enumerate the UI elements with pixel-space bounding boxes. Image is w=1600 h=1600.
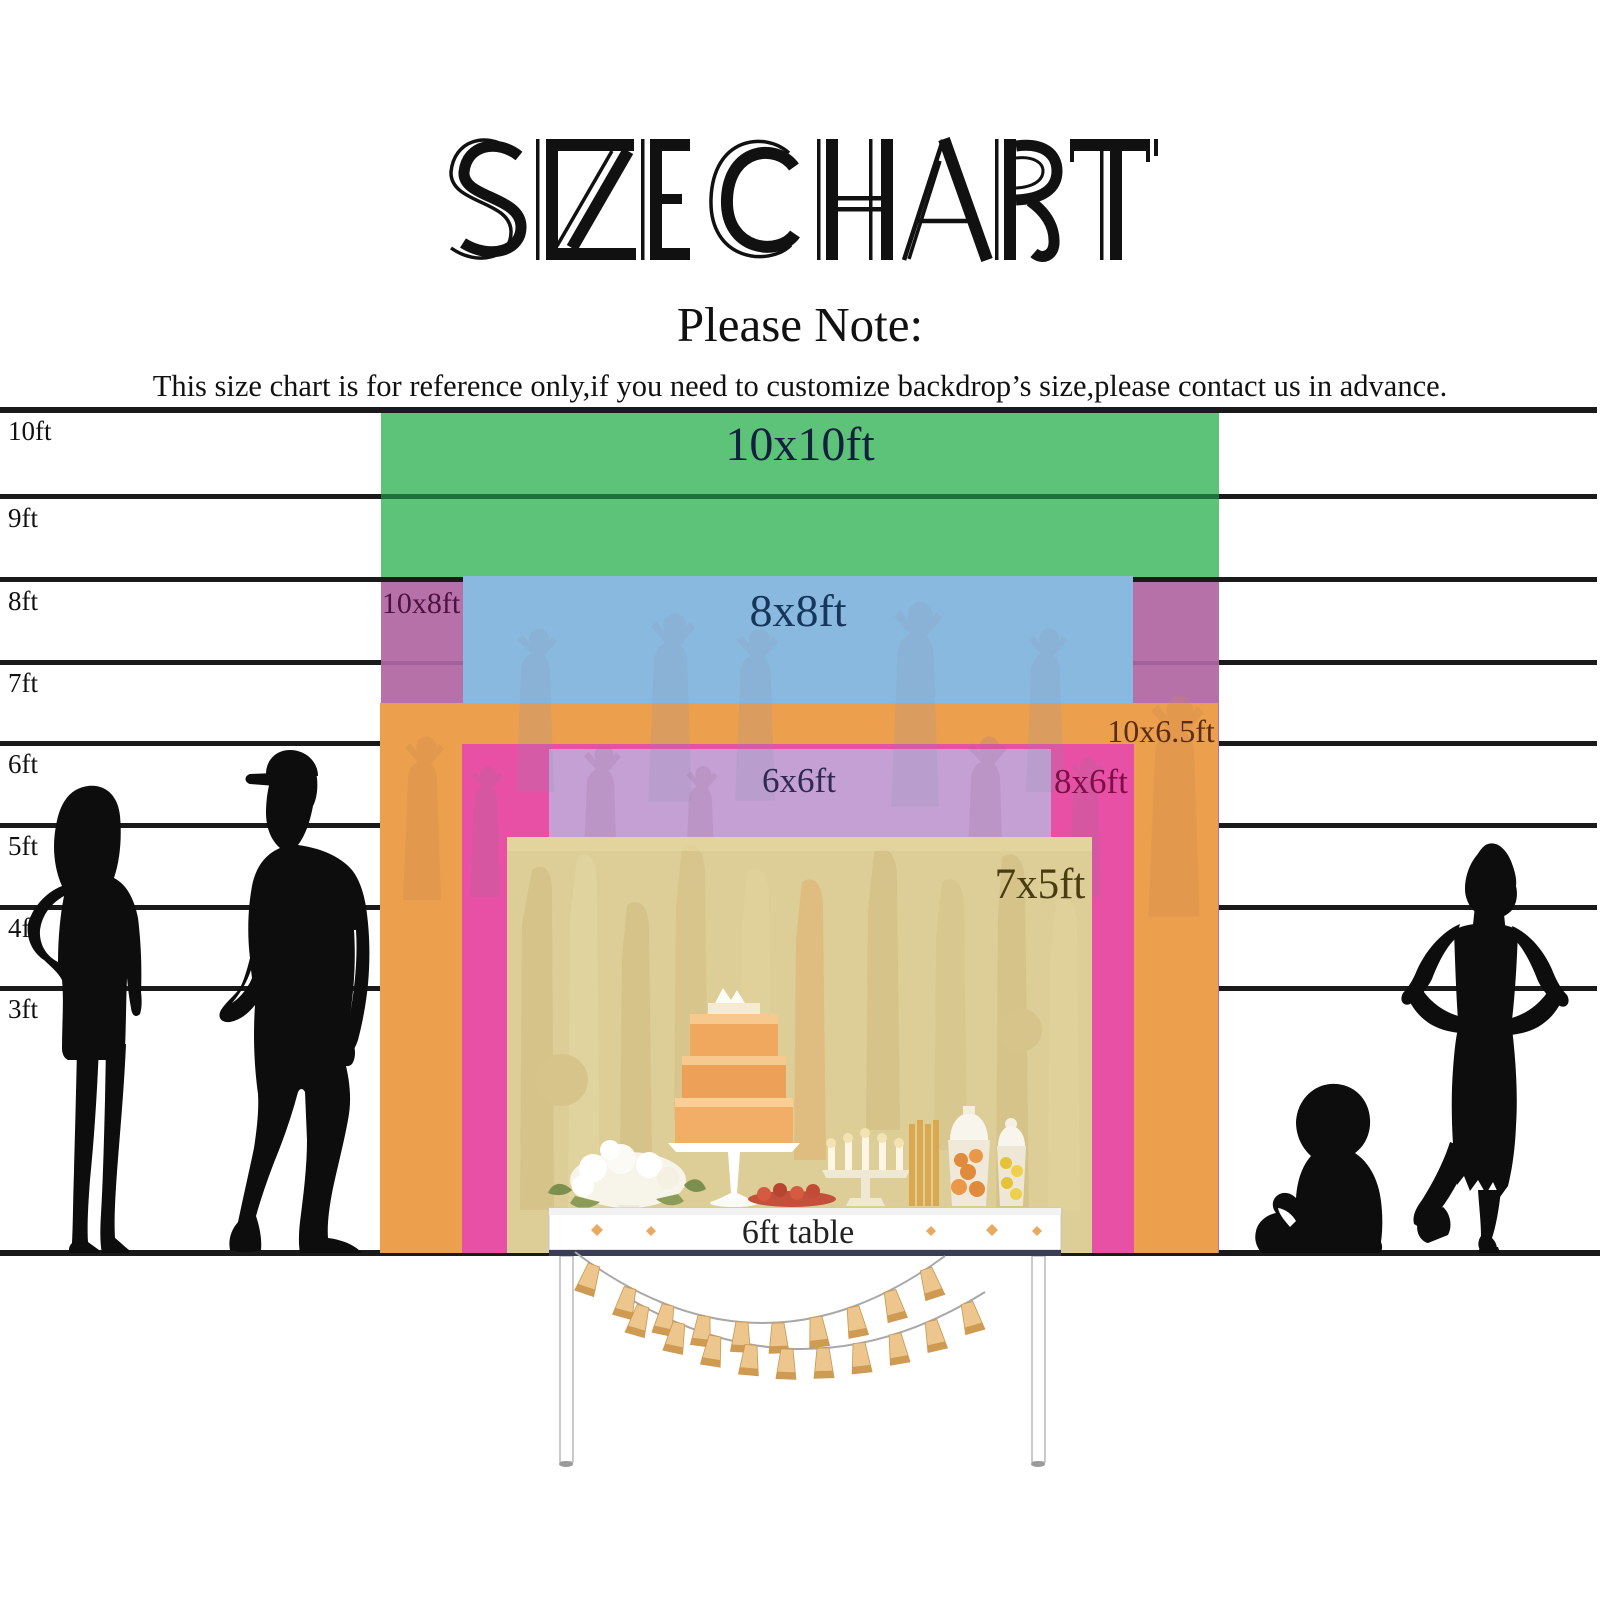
svg-text:Please Note:: Please Note: [677,297,923,352]
svg-text:5ft: 5ft [8,831,38,861]
svg-text:3ft: 3ft [8,994,38,1024]
svg-text:This size chart is for referen: This size chart is for reference only,if… [153,369,1448,403]
svg-text:10x10ft: 10x10ft [725,418,875,471]
svg-text:9ft: 9ft [8,503,38,533]
svg-text:10x6.5ft: 10x6.5ft [1107,713,1215,749]
svg-text:10x8ft: 10x8ft [382,587,461,620]
svg-text:7ft: 7ft [8,668,38,698]
svg-text:7x5ft: 7x5ft [995,861,1086,908]
svg-text:10ft: 10ft [8,416,52,446]
svg-text:8x8ft: 8x8ft [749,585,846,636]
svg-text:6x6ft: 6x6ft [762,761,836,800]
svg-text:8ft: 8ft [8,586,38,616]
svg-text:6ft: 6ft [8,749,38,779]
svg-text:8x6ft: 8x6ft [1054,762,1128,801]
svg-text:6ft table: 6ft table [742,1214,854,1251]
